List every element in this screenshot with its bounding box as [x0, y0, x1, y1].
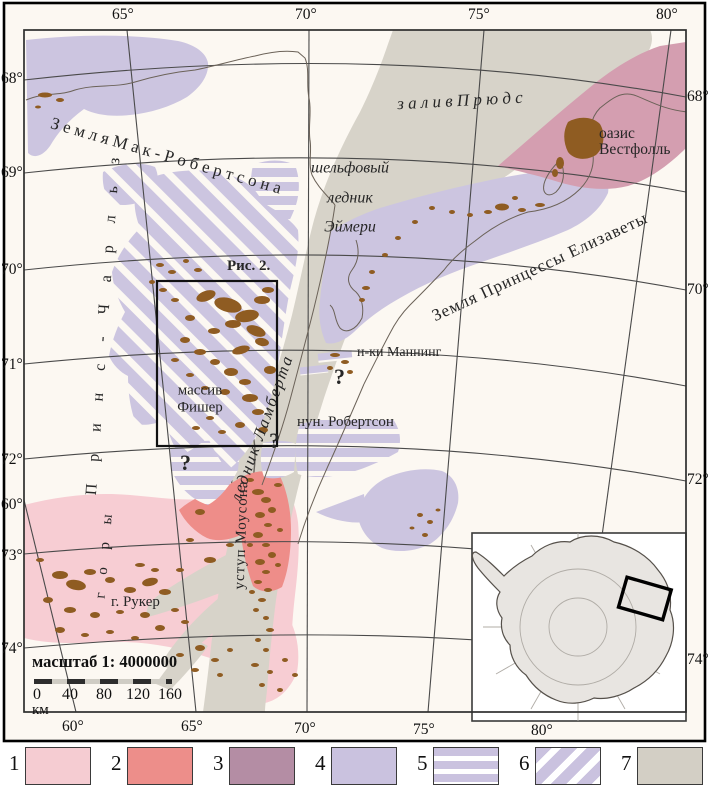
label-robertson-nunatak: нун. Робертсон	[297, 414, 394, 431]
legend-num-4: 4	[315, 751, 326, 776]
legend-num-2: 2	[111, 751, 122, 776]
legend-num-7: 7	[621, 751, 632, 776]
scale-tick-40: 40	[62, 686, 78, 704]
deg-right-68: 68°	[687, 88, 709, 106]
scale-title: масштаб 1: 4000000	[32, 652, 177, 672]
deg-right-72: 72°	[687, 471, 709, 489]
deg-right-70: 70°	[687, 281, 709, 299]
label-ruker: г. Рукер	[111, 594, 160, 611]
deg-right-74: 74°	[687, 651, 709, 669]
scale-unit: км	[32, 702, 49, 719]
deg-bottom-75: 75°	[413, 721, 435, 739]
label-fig2: Рис. 2.	[227, 258, 270, 275]
deg-top-80: 80°	[656, 6, 678, 24]
scale-tick-160: 160	[158, 686, 182, 704]
inset-map	[472, 532, 686, 722]
deg-left-70: 70°	[1, 261, 23, 279]
scale-tick-120: 120	[126, 686, 150, 704]
scale-tick-80: 80	[96, 686, 112, 704]
deg-left-60: 60°	[1, 496, 23, 514]
deg-left-73: 73°	[1, 547, 23, 565]
question-mark-3: ?	[180, 450, 191, 476]
legend-swatch-5	[433, 747, 499, 785]
legend-num-6: 6	[519, 751, 530, 776]
deg-bottom-70: 70°	[294, 720, 316, 738]
deg-bottom-80: 80°	[531, 722, 553, 740]
deg-left-71: 71°	[1, 356, 23, 374]
legend-swatch-7	[637, 747, 703, 785]
scale-bar	[34, 679, 172, 684]
legend-swatch-2	[127, 747, 193, 785]
deg-left-74: 74°	[1, 640, 23, 658]
label-oasis-vestfold: оазис Вестфолль	[599, 126, 670, 159]
scale-bar-block: масштаб 1: 4000000 0 40 80 120 160 км	[28, 652, 188, 722]
deg-top-75: 75°	[468, 6, 490, 24]
map-page: З е м л я М а к - Р о б е р т с о н а з …	[0, 0, 709, 792]
legend-num-3: 3	[213, 751, 224, 776]
legend-swatch-1	[25, 747, 91, 785]
deg-top-70: 70°	[295, 6, 317, 24]
label-amery-ice-shelf: шельфовый ледник Эймери	[311, 154, 389, 243]
legend-num-5: 5	[417, 751, 428, 776]
label-manning-nunataks: н-ки Маннинг	[357, 345, 441, 361]
deg-left-68: 68°	[1, 70, 23, 88]
deg-left-69: 69°	[1, 164, 23, 182]
legend-swatch-6	[535, 747, 601, 785]
deg-left-72: 72°	[1, 451, 23, 469]
legend-swatch-4	[331, 747, 397, 785]
legend-num-1: 1	[9, 751, 20, 776]
label-fisher-massif: массив Фишер	[177, 383, 223, 416]
question-mark-1: ?	[334, 364, 345, 390]
question-mark-2: ?	[269, 428, 280, 454]
legend-swatch-3	[229, 747, 295, 785]
deg-top-65: 65°	[112, 6, 134, 24]
